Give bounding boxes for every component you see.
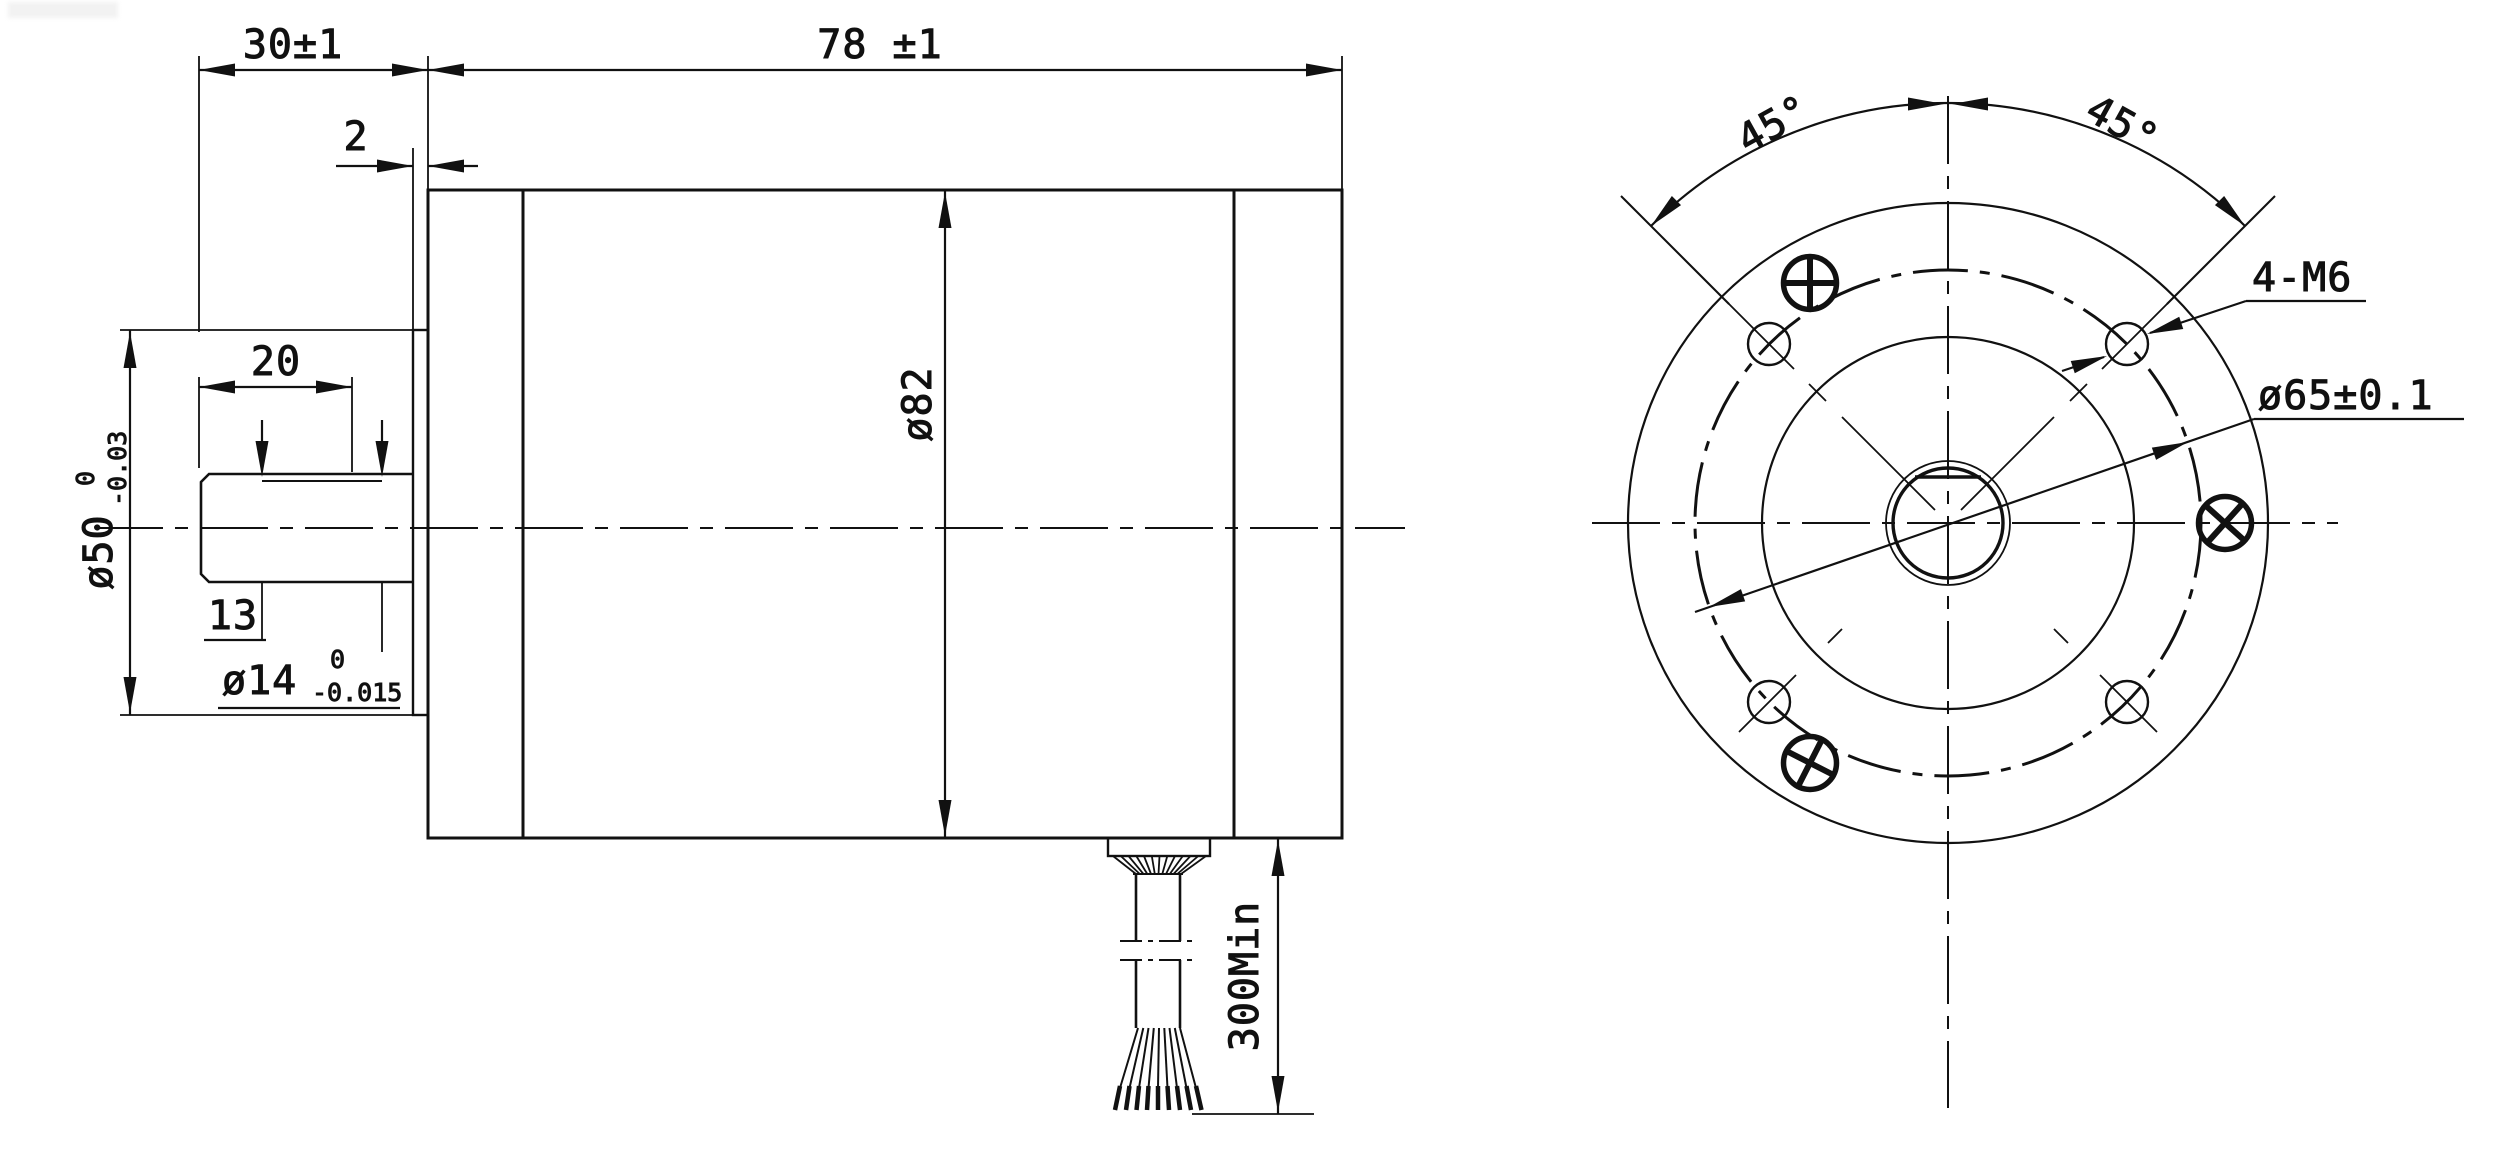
dim-angle-right-label: 45° bbox=[2078, 86, 2166, 163]
dim-body-dia-label: ø82 bbox=[895, 366, 941, 441]
dim-pilot-dia-tol-upper: 0 bbox=[71, 471, 100, 486]
dim-boss-thickness: 2 bbox=[336, 114, 478, 330]
cable-break-lines bbox=[1120, 941, 1196, 960]
watermark-remnant bbox=[8, 2, 118, 18]
dim-body-length: 78 ±1 bbox=[428, 22, 1342, 190]
dim-bolt-circle-label: ø65±0.1 bbox=[2258, 373, 2434, 419]
cable-wire-ends bbox=[1115, 1086, 1202, 1110]
front-view: 45° 45° 4-M6 ø65±0.1 bbox=[1592, 86, 2464, 1108]
dim-shaft-dia-tol-lower: -0.015 bbox=[312, 678, 402, 707]
motor-body-outline bbox=[428, 190, 1342, 838]
dim-front-length: 30±1 bbox=[199, 22, 428, 332]
dim-body-length-label: 78 ±1 bbox=[817, 22, 942, 68]
dim-cable-length-label: 300Min bbox=[1222, 901, 1268, 1052]
cable-bundle bbox=[1108, 838, 1210, 1110]
drawing-page: 30±1 78 ±1 2 bbox=[0, 0, 2516, 1155]
label-mounting-holes: 4-M6 bbox=[2062, 255, 2366, 373]
technical-drawing: 30±1 78 ±1 2 bbox=[0, 0, 2516, 1155]
screw-head-bottom-left bbox=[1774, 727, 1847, 800]
dim-flat-length-label: 13 bbox=[208, 593, 258, 639]
dim-bolt-circle-diameter: ø65±0.1 bbox=[1695, 373, 2464, 613]
dim-cable-length: 300Min bbox=[1192, 838, 1314, 1114]
dim-boss-thickness-label: 2 bbox=[343, 114, 368, 160]
dim-front-length-label: 30±1 bbox=[243, 22, 343, 68]
cable-connector bbox=[1108, 838, 1210, 856]
dim-pilot-dia-label: ø50 bbox=[76, 514, 122, 589]
screw-head-top-left bbox=[1783, 256, 1837, 310]
label-shaft-diameter: ø14 0 -0.015 bbox=[218, 645, 402, 708]
dim-shaft-length: 20 bbox=[199, 339, 352, 472]
dim-shaft-dia-tol-upper: 0 bbox=[330, 645, 345, 674]
label-mounting-holes-text: 4-M6 bbox=[2252, 255, 2352, 301]
cable-strand-fan-top bbox=[1113, 856, 1206, 874]
dim-flat-length: 13 bbox=[204, 420, 389, 652]
cable-sleeve bbox=[1136, 874, 1180, 1028]
flange-boss-outline bbox=[413, 330, 428, 715]
dim-pilot-dia-tol-lower: -0.03 bbox=[103, 431, 132, 506]
cable-strand-fan-bottom bbox=[1120, 1028, 1196, 1088]
dim-shaft-dia-label: ø14 bbox=[222, 658, 297, 704]
dim-body-diameter: ø82 bbox=[895, 190, 952, 838]
dim-shaft-length-label: 20 bbox=[251, 339, 301, 385]
dim-angle-left-label: 45° bbox=[1730, 86, 1818, 163]
side-view: 30±1 78 ±1 2 bbox=[71, 22, 1405, 1114]
